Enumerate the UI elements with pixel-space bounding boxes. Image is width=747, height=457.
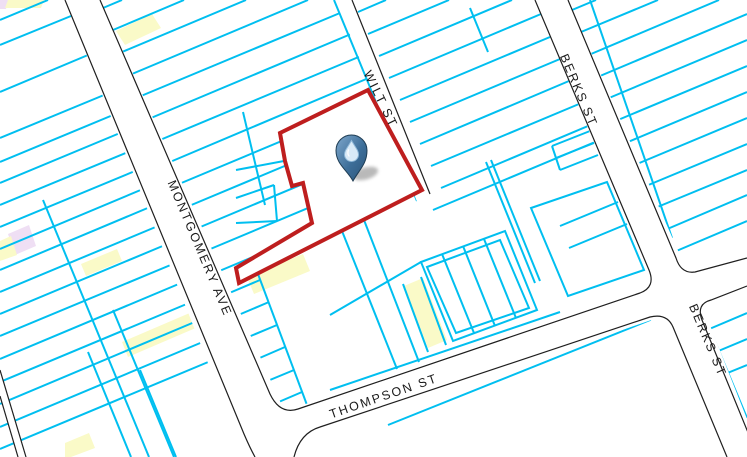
map-viewport[interactable]: MONTGOMERY AVEWILT STBERKS STBERKS STTHO… <box>0 0 747 457</box>
parcel-map-canvas[interactable]: MONTGOMERY AVEWILT STBERKS STBERKS STTHO… <box>0 0 747 457</box>
